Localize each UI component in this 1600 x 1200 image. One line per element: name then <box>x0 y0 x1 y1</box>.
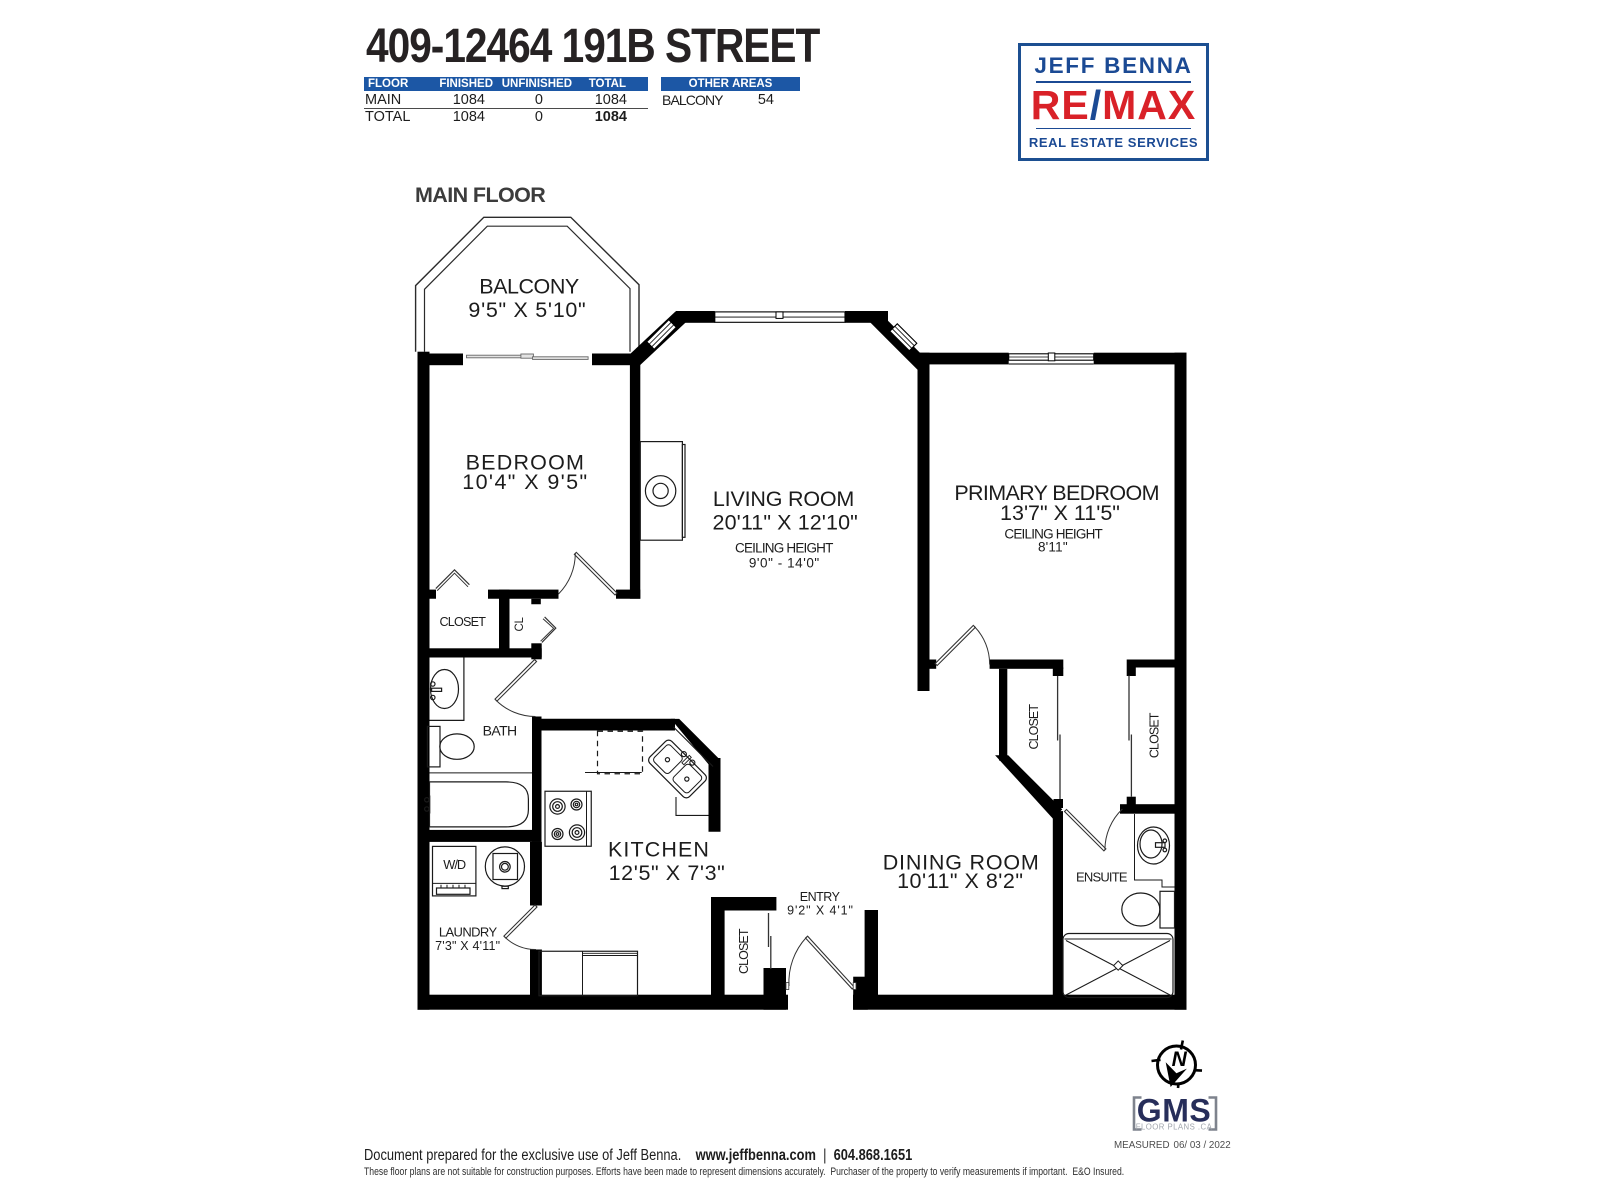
svg-text:CLOSET: CLOSET <box>1148 712 1162 758</box>
svg-text:LAUNDRY: LAUNDRY <box>439 924 498 939</box>
svg-text:ENTRY: ENTRY <box>800 890 841 904</box>
svg-text:CEILING HEIGHT: CEILING HEIGHT <box>735 540 833 555</box>
svg-text:10'4" X 9'5": 10'4" X 9'5" <box>462 470 588 494</box>
svg-text:10'11" X 8'2": 10'11" X 8'2" <box>897 869 1023 893</box>
svg-text:9'0" - 14'0": 9'0" - 14'0" <box>749 555 820 570</box>
svg-text:13'7" X 11'5": 13'7" X 11'5" <box>1000 501 1120 525</box>
svg-text:7'3" X 4'11": 7'3" X 4'11" <box>435 939 500 953</box>
svg-text:ENSUITE: ENSUITE <box>1076 869 1128 884</box>
svg-text:BATH: BATH <box>483 722 517 738</box>
svg-text:LIVING ROOM: LIVING ROOM <box>713 487 854 511</box>
svg-text:9'2" X 4'1": 9'2" X 4'1" <box>787 904 854 918</box>
svg-text:8'11": 8'11" <box>1038 540 1068 555</box>
svg-text:12'5" X 7'3": 12'5" X 7'3" <box>609 861 726 885</box>
svg-text:N: N <box>1172 1048 1188 1071</box>
svg-text:9'5" X 5'10": 9'5" X 5'10" <box>468 298 586 322</box>
svg-text:W/D: W/D <box>443 857 466 872</box>
svg-text:BALCONY: BALCONY <box>479 275 579 299</box>
svg-text:20'11" X 12'10": 20'11" X 12'10" <box>713 511 858 535</box>
svg-text:CLOSET: CLOSET <box>737 928 751 974</box>
svg-text:CLOSET: CLOSET <box>1027 704 1041 750</box>
svg-text:FLOOR PLANS .CA: FLOOR PLANS .CA <box>1136 1123 1213 1132</box>
svg-text:CL: CL <box>514 616 526 631</box>
svg-text:KITCHEN: KITCHEN <box>608 837 710 861</box>
svg-text:CLOSET: CLOSET <box>440 615 487 629</box>
